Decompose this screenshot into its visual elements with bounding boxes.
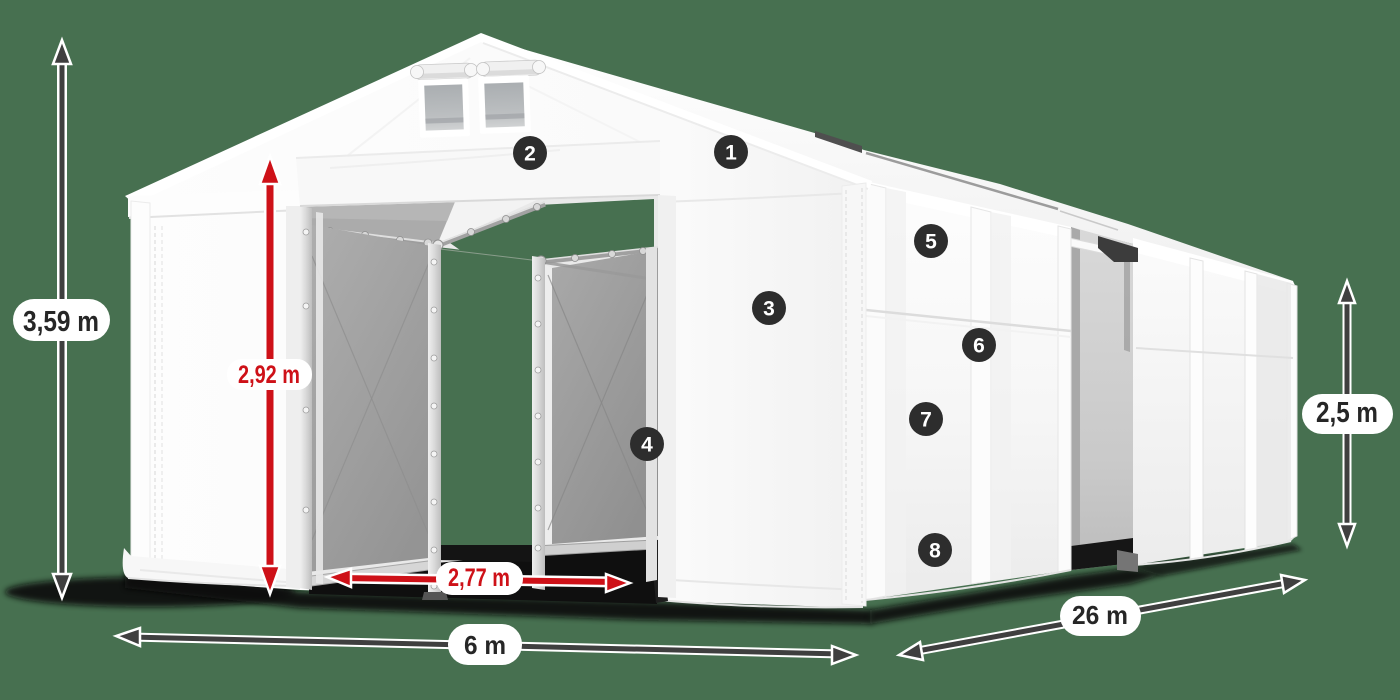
svg-text:2,5 m: 2,5 m (1316, 397, 1378, 429)
svg-text:5: 5 (925, 231, 937, 254)
svg-text:7: 7 (920, 409, 932, 432)
svg-text:26 m: 26 m (1072, 600, 1128, 630)
svg-text:2,77 m: 2,77 m (448, 564, 510, 592)
svg-text:1: 1 (725, 142, 737, 165)
svg-text:6: 6 (973, 335, 985, 358)
svg-text:2,92 m: 2,92 m (238, 361, 300, 389)
svg-text:3: 3 (763, 298, 775, 321)
svg-text:2: 2 (524, 143, 536, 166)
svg-text:8: 8 (929, 540, 941, 563)
svg-text:4: 4 (641, 434, 653, 457)
svg-text:3,59 m: 3,59 m (23, 306, 99, 338)
svg-text:6 m: 6 m (464, 630, 506, 660)
